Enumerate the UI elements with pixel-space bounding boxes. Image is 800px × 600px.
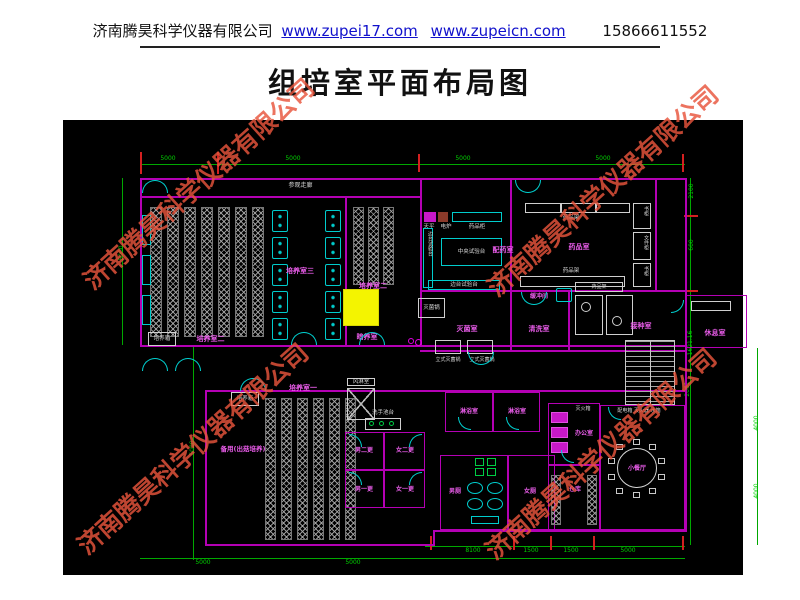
wall: [655, 178, 657, 290]
medicine-shelf: [525, 203, 630, 213]
chair: [616, 444, 623, 450]
door-arc: [155, 358, 168, 371]
dim-label: 1500: [551, 548, 591, 554]
culture-cart: [272, 237, 288, 259]
dim-label: 5000: [119, 236, 125, 270]
culture-cart: [272, 318, 288, 340]
medicine-shelf-label: 药品架: [553, 215, 589, 221]
room-label-m1: 男一更: [347, 486, 381, 493]
door-arc: [155, 180, 168, 193]
room-label-m2: 男二更: [347, 447, 381, 454]
culture-rack: [235, 207, 247, 337]
file-cabinet: 文件柜: [633, 232, 651, 260]
wall: [420, 290, 685, 292]
culture-rack: [218, 207, 230, 337]
wash-sink: [556, 288, 572, 302]
culture-rack: [265, 398, 276, 540]
dim-label: 5000: [443, 156, 483, 162]
bookcase: 书柜: [633, 263, 651, 287]
culture-rack: [313, 398, 324, 540]
dimension-line: [140, 558, 685, 559]
room-label-shower: 淋浴室: [499, 408, 535, 415]
office-desk: [551, 427, 568, 438]
room-label-mtoilet: 男厕: [443, 488, 467, 495]
dim-label: 4000: [754, 406, 760, 440]
door-arc: [521, 292, 534, 305]
room-label-wash: 清洗室: [519, 326, 559, 333]
dimension-line: [140, 164, 685, 165]
incubator-label: 培养箱: [148, 336, 176, 342]
chair: [658, 474, 665, 480]
page: 济南腾昊科学仪器有限公司 www.zupei17.com www.zupeicn…: [0, 0, 800, 600]
wall: [140, 196, 420, 198]
room-label-spare: 备用(出菇培养): [188, 446, 298, 453]
dimension-tick: [593, 536, 595, 550]
culture-rack: [329, 398, 340, 540]
room-label-culture3: 培养室三: [275, 268, 325, 275]
culture-rack: [167, 207, 179, 337]
wall: [140, 345, 685, 347]
culture-rack: [353, 207, 364, 285]
room-label-pharmacy: 配药室: [483, 247, 523, 254]
sink-basin: [389, 421, 394, 426]
chair: [633, 492, 640, 498]
room-label-medicine: 药品室: [558, 244, 600, 251]
autoclave-label: 灭菌锅: [418, 305, 445, 311]
room-label-f1: 女一更: [388, 486, 422, 493]
culture-rack: [281, 398, 292, 540]
wall: [420, 178, 422, 346]
toilet-stall: [467, 482, 483, 494]
urinal: [475, 458, 484, 466]
shelf-divider: [595, 203, 597, 213]
room-label-steril: 灭菌室: [447, 326, 487, 333]
culture-cart: [325, 318, 341, 340]
stove-label: 电炉: [435, 224, 457, 230]
dimension-line: [757, 348, 758, 545]
room-label-storage: 仓库: [563, 486, 587, 493]
room-label-dining: 小餐厅: [621, 465, 653, 472]
urinal: [475, 468, 484, 476]
floor-plan-canvas: 5000 5000 5000 5000 5000 5000 2100 600 1…: [63, 120, 743, 575]
door-arc: [481, 352, 494, 365]
company-name: 济南腾昊科学仪器有限公司: [93, 22, 273, 40]
door-arc: [528, 180, 541, 193]
dim-label: 5000: [583, 156, 623, 162]
culture-cart: [325, 237, 341, 259]
culture-rack: [297, 398, 308, 540]
chair: [649, 444, 656, 450]
chair: [616, 488, 623, 494]
door-arc: [304, 332, 317, 345]
dim-label: 4000: [754, 474, 760, 508]
header: 济南腾昊科学仪器有限公司 www.zupei17.com www.zupeicn…: [0, 20, 800, 41]
door-arc: [468, 352, 481, 365]
culture-rack: [150, 207, 162, 337]
air-shower-label: 风淋室: [347, 378, 375, 386]
dimension-tick: [682, 536, 684, 550]
wall: [510, 178, 512, 350]
door-arc: [534, 292, 547, 305]
urinal: [487, 458, 496, 466]
stove-box: [438, 212, 448, 222]
culture-rack: [383, 207, 394, 285]
clean-bench: [575, 295, 603, 335]
sink-basin: [379, 421, 384, 426]
culture-rack: [184, 207, 196, 337]
office-desk: [551, 412, 568, 423]
website-link-2[interactable]: www.zupeicn.com: [431, 22, 566, 40]
door-arc: [515, 180, 528, 193]
dimension-tick: [418, 154, 420, 172]
rest-shelf: [691, 301, 731, 311]
dim-label: 5000: [148, 156, 188, 162]
room-label-shower: 淋浴室: [451, 408, 487, 415]
door-arc: [175, 358, 188, 371]
dim-label: 2100: [689, 174, 695, 208]
highlight-box: [343, 289, 379, 326]
door-arc: [142, 358, 155, 371]
room-label-culture1: 培养室一: [278, 385, 328, 392]
chair: [658, 458, 665, 464]
dimension-tick: [217, 152, 219, 174]
room-label-inoculation: 接种室: [621, 323, 661, 330]
door-arc: [240, 378, 253, 391]
culture-cart: [325, 291, 341, 313]
door-arc: [142, 180, 155, 193]
dim-label: 8100: [453, 548, 493, 554]
medicine-cabinet-box: [452, 212, 502, 222]
medicine-shelf-label: 药品架: [581, 284, 617, 290]
dim-label: 1500: [511, 548, 551, 554]
header-divider: [140, 46, 660, 48]
wall: [433, 530, 435, 546]
side-bench-label: 边台试验台: [438, 282, 490, 288]
vertical-autoclave: [435, 340, 461, 354]
wall: [685, 178, 687, 532]
culture-rack: [201, 207, 213, 337]
door-arc: [253, 378, 266, 391]
sink-basin: [369, 421, 374, 426]
culture-cart: [325, 210, 341, 232]
dimension-tick: [682, 154, 684, 172]
door-arc: [188, 358, 201, 371]
side-bench: [142, 295, 151, 325]
wall: [205, 544, 435, 546]
storage-rack: [587, 475, 597, 525]
med-cabinet-label: 药品柜: [459, 224, 495, 230]
corridor-label: 参观走廊: [253, 183, 348, 189]
urinal: [487, 468, 496, 476]
dim-label: 5000: [333, 560, 373, 566]
room-label-f2: 女二更: [388, 447, 422, 454]
wall: [492, 392, 494, 432]
room-label-rest: 休息室: [693, 330, 737, 337]
wall: [205, 390, 207, 546]
wall: [433, 530, 685, 532]
room-label-office: 办公室: [568, 430, 600, 437]
clean-bench-detail: [581, 302, 591, 312]
shelf-divider: [560, 203, 562, 213]
firebox-label: 灭火箱: [568, 406, 598, 412]
dim-label: 600: [689, 228, 695, 262]
toilet-stall: [487, 498, 503, 510]
vertical-autoclave-label: 立式灭菌锅: [431, 357, 465, 363]
phone-number: 15866611552: [602, 22, 707, 40]
page-title: 组培室平面布局图: [0, 60, 800, 102]
wall: [140, 178, 685, 180]
culture-cart: [272, 210, 288, 232]
balance-table: [424, 212, 436, 222]
dim-label: 5000: [273, 156, 313, 162]
bookcase: 书柜: [633, 203, 651, 229]
room-label-ftoilet: 女厕: [518, 488, 542, 495]
chair: [608, 474, 615, 480]
chair: [633, 439, 640, 445]
handwash-label: 洗手池台: [363, 410, 403, 416]
incubator-label: 培养箱: [231, 396, 259, 402]
door-arc: [291, 332, 304, 345]
culture-cart: [325, 264, 341, 286]
chair: [608, 458, 615, 464]
medicine-shelf-label: 药品架: [553, 268, 589, 274]
storage-rack: [551, 475, 561, 525]
room-label-culture2b: 培养室二: [188, 336, 233, 343]
dimension-tick: [140, 152, 142, 174]
culture-rack: [252, 207, 264, 337]
side-bench: [142, 255, 151, 285]
wall: [345, 469, 425, 471]
dim-label: 5000: [183, 560, 223, 566]
toilet-sink: [471, 516, 499, 524]
ceiling-fan-icon: [408, 338, 414, 344]
culture-rack: [368, 207, 379, 285]
culture-cart: [272, 291, 288, 313]
side-bench: [142, 215, 151, 245]
door-arc: [671, 300, 684, 313]
toilet-stall: [487, 482, 503, 494]
staircase: [625, 340, 675, 405]
toilet-stall: [467, 498, 483, 510]
wall: [507, 455, 509, 530]
dimension-line: [425, 546, 685, 547]
chair: [649, 488, 656, 494]
dimension-tick: [430, 536, 432, 550]
dim-label: 5000: [608, 548, 648, 554]
side-bench-vertical: 边台试验台: [423, 228, 433, 288]
website-link-1[interactable]: www.zupei17.com: [281, 22, 417, 40]
